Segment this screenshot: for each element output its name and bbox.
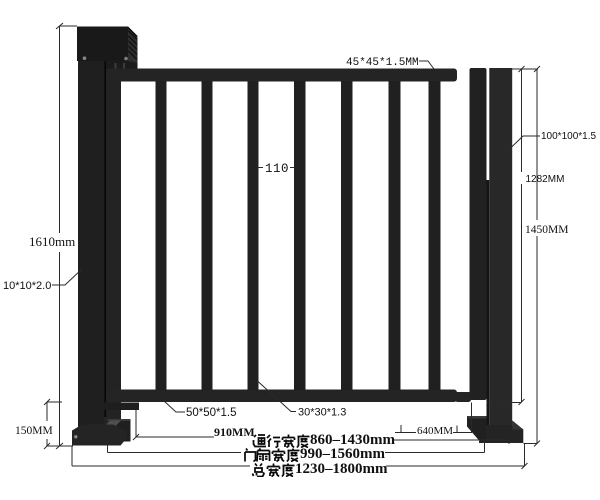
svg-text:1450MM: 1450MM [525, 224, 568, 236]
svg-text:1610mm: 1610mm [29, 234, 75, 249]
svg-text:100*100*1.5: 100*100*1.5 [541, 131, 596, 142]
svg-text:910MM: 910MM [214, 425, 255, 439]
svg-text:150MM: 150MM [15, 425, 53, 437]
svg-text:640MM: 640MM [417, 425, 453, 437]
svg-text:30*30*1.3: 30*30*1.3 [298, 407, 346, 419]
svg-text:110: 110 [265, 162, 289, 176]
svg-text:45*45*1.5MM: 45*45*1.5MM [346, 57, 419, 69]
svg-text:1282MM: 1282MM [526, 174, 565, 185]
svg-text:50*50*1.5: 50*50*1.5 [186, 407, 237, 419]
svg-text:10*10*2.0: 10*10*2.0 [3, 280, 51, 292]
